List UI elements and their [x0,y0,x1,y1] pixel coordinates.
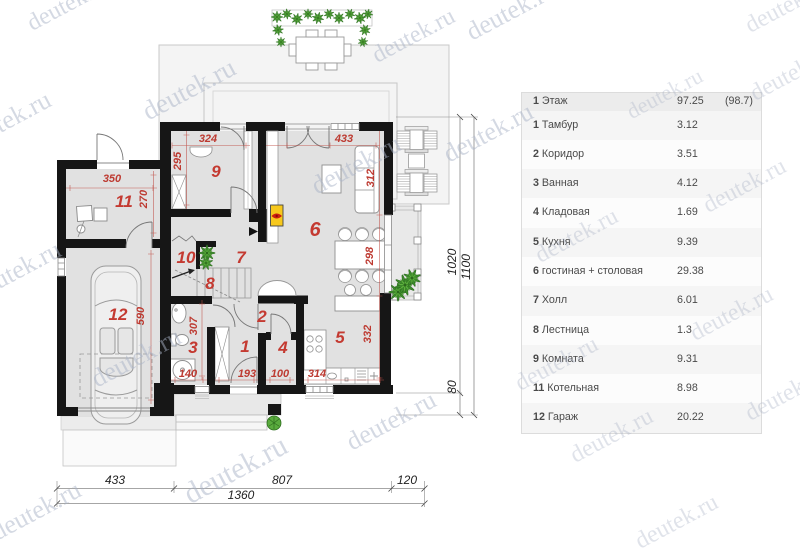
svg-text:deutek.ru: deutek.ru [566,403,658,468]
svg-text:807: 807 [272,473,293,487]
svg-text:3: 3 [188,338,198,357]
svg-text:deutek.ru: deutek.ru [741,361,800,426]
svg-text:deutek.ru: deutek.ru [0,475,86,546]
svg-text:4: 4 [277,338,288,357]
svg-text:1100: 1100 [459,254,473,280]
svg-text:350: 350 [103,173,122,185]
svg-text:deutek.ru: deutek.ru [741,0,800,38]
svg-text:324: 324 [199,133,217,145]
svg-text:120: 120 [397,473,417,487]
svg-text:deutek.ru: deutek.ru [0,235,66,306]
svg-text:deutek.ru: deutek.ru [511,331,603,396]
svg-text:deutek.ru: deutek.ru [686,281,778,346]
svg-text:433: 433 [334,133,353,145]
svg-text:314: 314 [308,368,326,380]
svg-text:80: 80 [445,380,459,394]
svg-text:deutek.ru: deutek.ru [438,97,538,168]
svg-text:10: 10 [177,248,196,267]
svg-text:deutek.ru: deutek.ru [341,385,441,456]
svg-text:5: 5 [335,328,345,347]
svg-text:12: 12 [109,305,128,324]
svg-text:140: 140 [179,368,198,380]
svg-text:deutek.ru: deutek.ru [531,203,623,268]
svg-text:deutek.ru: deutek.ru [699,153,791,218]
svg-text:1: 1 [240,337,249,356]
svg-text:295: 295 [172,151,184,171]
svg-text:1020: 1020 [445,248,459,275]
svg-text:193: 193 [238,368,256,380]
svg-text:433: 433 [105,473,125,487]
svg-text:deutek.ru: deutek.ru [23,0,115,36]
svg-text:deutek.ru: deutek.ru [746,41,800,106]
svg-text:6: 6 [309,219,321,241]
svg-text:332: 332 [362,325,374,343]
svg-text:11: 11 [115,192,133,211]
svg-text:590: 590 [135,306,147,325]
svg-text:7: 7 [236,248,247,267]
svg-text:8: 8 [205,274,215,293]
svg-text:307: 307 [188,316,200,335]
svg-text:100: 100 [271,368,290,380]
svg-text:9: 9 [211,162,221,181]
svg-text:298: 298 [364,246,376,266]
svg-text:deutek.ru: deutek.ru [622,63,707,124]
svg-text:deutek.ru: deutek.ru [0,85,56,156]
svg-text:2: 2 [256,307,267,326]
svg-text:deutek.ru: deutek.ru [631,489,723,550]
svg-text:270: 270 [138,189,150,209]
svg-text:deutek.ru: deutek.ru [461,0,561,46]
